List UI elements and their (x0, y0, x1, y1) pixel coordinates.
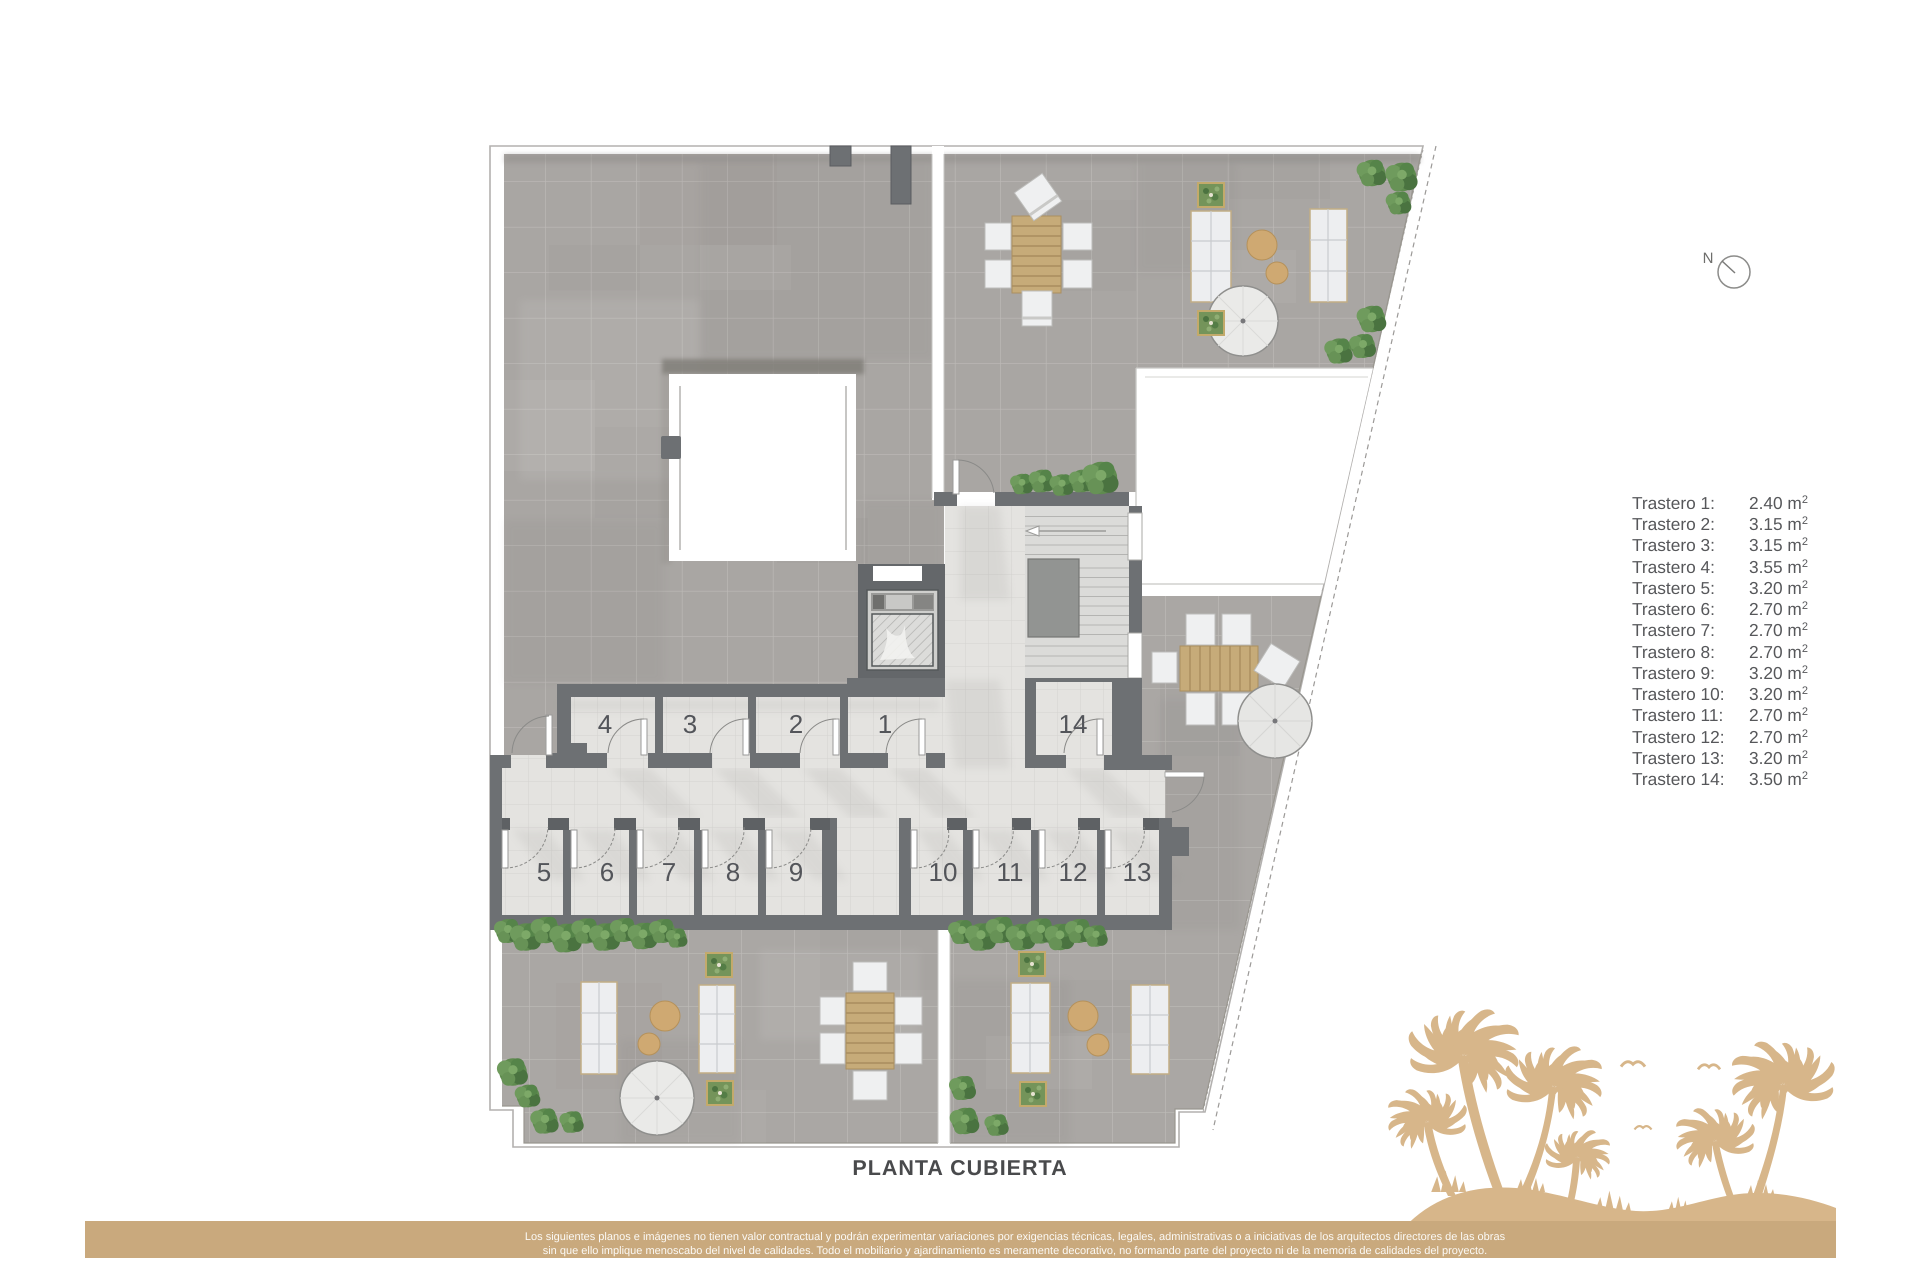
svg-text:3.15 m2: 3.15 m2 (1749, 514, 1808, 534)
svg-text:sin que ello implique menoscab: sin que ello implique menoscabo del nive… (543, 1245, 1488, 1257)
svg-text:Trastero 12:: Trastero 12: (1632, 727, 1725, 747)
svg-text:N: N (1703, 250, 1714, 267)
svg-text:2.70 m2: 2.70 m2 (1749, 620, 1808, 640)
svg-text:Trastero 13:: Trastero 13: (1632, 748, 1725, 768)
svg-text:14: 14 (1059, 709, 1088, 739)
svg-text:Trastero 14:: Trastero 14: (1632, 769, 1725, 789)
svg-text:11: 11 (997, 857, 1024, 887)
svg-text:4: 4 (598, 709, 612, 739)
svg-text:3.20 m2: 3.20 m2 (1749, 578, 1808, 598)
svg-text:5: 5 (537, 857, 551, 887)
svg-text:13: 13 (1123, 857, 1152, 887)
svg-text:2: 2 (789, 709, 803, 739)
svg-text:Trastero 1:: Trastero 1: (1632, 493, 1715, 513)
svg-text:9: 9 (789, 857, 803, 887)
svg-text:PLANTA CUBIERTA: PLANTA CUBIERTA (852, 1156, 1067, 1180)
svg-text:3.55 m2: 3.55 m2 (1749, 557, 1808, 577)
svg-text:Trastero 4:: Trastero 4: (1632, 557, 1715, 577)
svg-text:12: 12 (1059, 857, 1088, 887)
svg-text:Trastero 2:: Trastero 2: (1632, 514, 1715, 534)
svg-text:Trastero 9:: Trastero 9: (1632, 663, 1715, 683)
svg-text:3.20 m2: 3.20 m2 (1749, 684, 1808, 704)
svg-text:2.70 m2: 2.70 m2 (1749, 642, 1808, 662)
svg-text:2.70 m2: 2.70 m2 (1749, 599, 1808, 619)
svg-text:3.20 m2: 3.20 m2 (1749, 748, 1808, 768)
svg-text:Trastero 10:: Trastero 10: (1632, 684, 1725, 704)
svg-text:2.40 m2: 2.40 m2 (1749, 493, 1808, 513)
svg-text:6: 6 (600, 857, 614, 887)
svg-text:10: 10 (929, 857, 958, 887)
svg-text:7: 7 (662, 857, 676, 887)
svg-text:Trastero 8:: Trastero 8: (1632, 642, 1715, 662)
svg-text:8: 8 (726, 857, 740, 887)
svg-text:Trastero 11:: Trastero 11: (1632, 705, 1723, 725)
svg-text:Trastero 3:: Trastero 3: (1632, 535, 1715, 555)
svg-text:3.50 m2: 3.50 m2 (1749, 769, 1808, 789)
svg-text:1: 1 (878, 709, 892, 739)
svg-text:3: 3 (683, 709, 697, 739)
svg-text:Trastero 6:: Trastero 6: (1632, 599, 1715, 619)
svg-text:3.15 m2: 3.15 m2 (1749, 535, 1808, 555)
svg-text:Trastero 7:: Trastero 7: (1632, 620, 1715, 640)
svg-text:Los siguientes planos e imágen: Los siguientes planos e imágenes no tien… (525, 1231, 1506, 1243)
svg-text:2.70 m2: 2.70 m2 (1749, 705, 1808, 725)
svg-text:Trastero 5:: Trastero 5: (1632, 578, 1715, 598)
svg-text:2.70 m2: 2.70 m2 (1749, 727, 1808, 747)
svg-text:3.20 m2: 3.20 m2 (1749, 663, 1808, 683)
